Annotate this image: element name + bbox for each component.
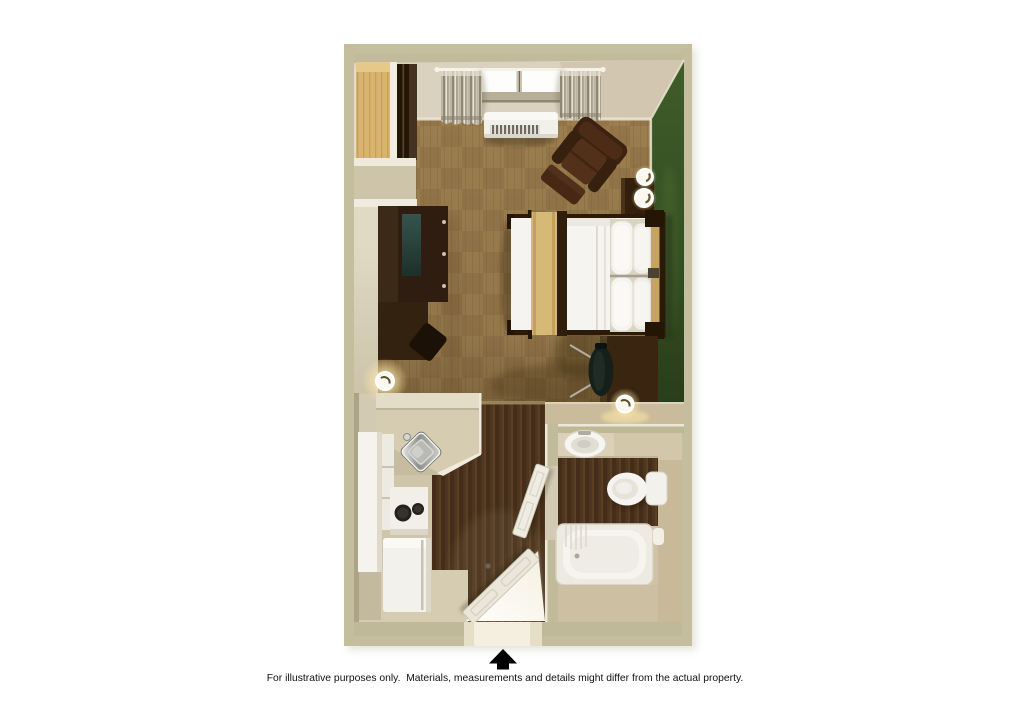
svg-text:For illustrative purposes only: For illustrative purposes only. Material… — [267, 673, 744, 684]
